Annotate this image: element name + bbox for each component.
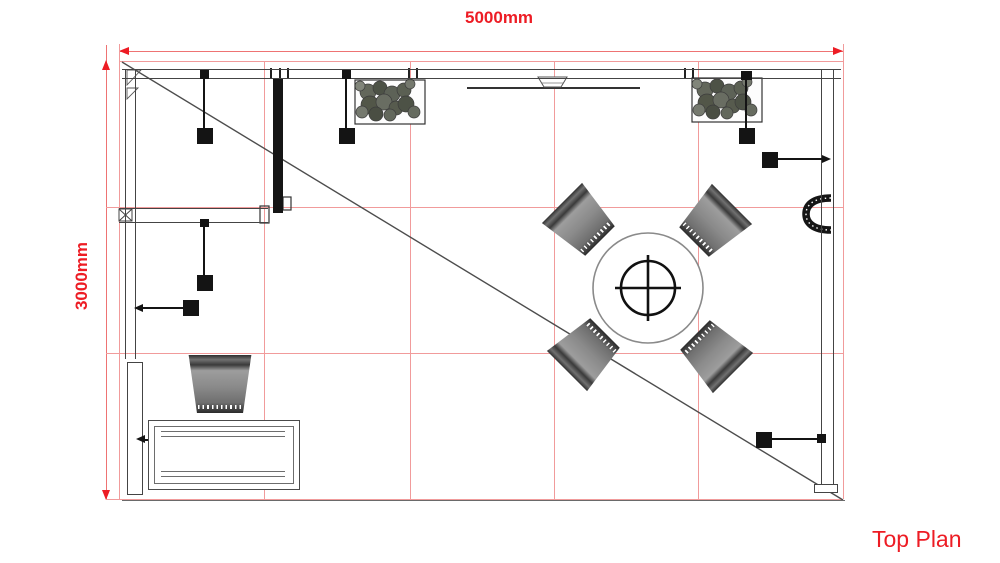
wall-bottom-edge <box>122 500 845 501</box>
light-mount <box>342 70 351 79</box>
partition-wall <box>119 208 268 223</box>
wall-right-foot <box>814 484 838 493</box>
light-stem <box>203 79 205 128</box>
light-stem <box>778 158 823 160</box>
planter-top-left <box>355 79 425 124</box>
light-stem <box>142 307 183 309</box>
light-stem <box>772 438 820 440</box>
ceiling-light <box>183 300 199 316</box>
light-mount <box>200 219 209 227</box>
round-table <box>593 233 703 343</box>
ceiling-light <box>197 128 213 144</box>
ceiling-light <box>756 432 772 448</box>
light-mount <box>200 70 209 79</box>
wall-top <box>122 69 841 79</box>
single-chair-bottom-left <box>188 355 252 413</box>
light-stem <box>745 80 747 128</box>
connector-arrow-icon <box>134 304 143 312</box>
ceiling-light <box>339 128 355 144</box>
light-stem <box>345 79 347 128</box>
chair-stitch-dots <box>198 405 243 409</box>
floor-plan-canvas: 5000mm 3000mm Top Plan <box>0 0 1000 563</box>
connector-arrow-icon <box>136 435 145 443</box>
ceiling-light <box>762 152 778 168</box>
wall-right <box>821 70 834 486</box>
planter-top-right <box>692 77 762 122</box>
chair-seat <box>188 355 252 413</box>
light-mount <box>817 434 826 443</box>
table-rail-bottom <box>161 471 285 477</box>
wall-thick-bar <box>273 79 283 213</box>
light-mount <box>741 71 752 80</box>
wall-left-lower-panel <box>127 362 143 495</box>
ceiling-light <box>197 275 213 291</box>
connector-arrow-icon <box>822 155 831 163</box>
ceiling-light <box>739 128 755 144</box>
table-rail-top <box>161 431 285 437</box>
light-stem <box>203 227 205 275</box>
